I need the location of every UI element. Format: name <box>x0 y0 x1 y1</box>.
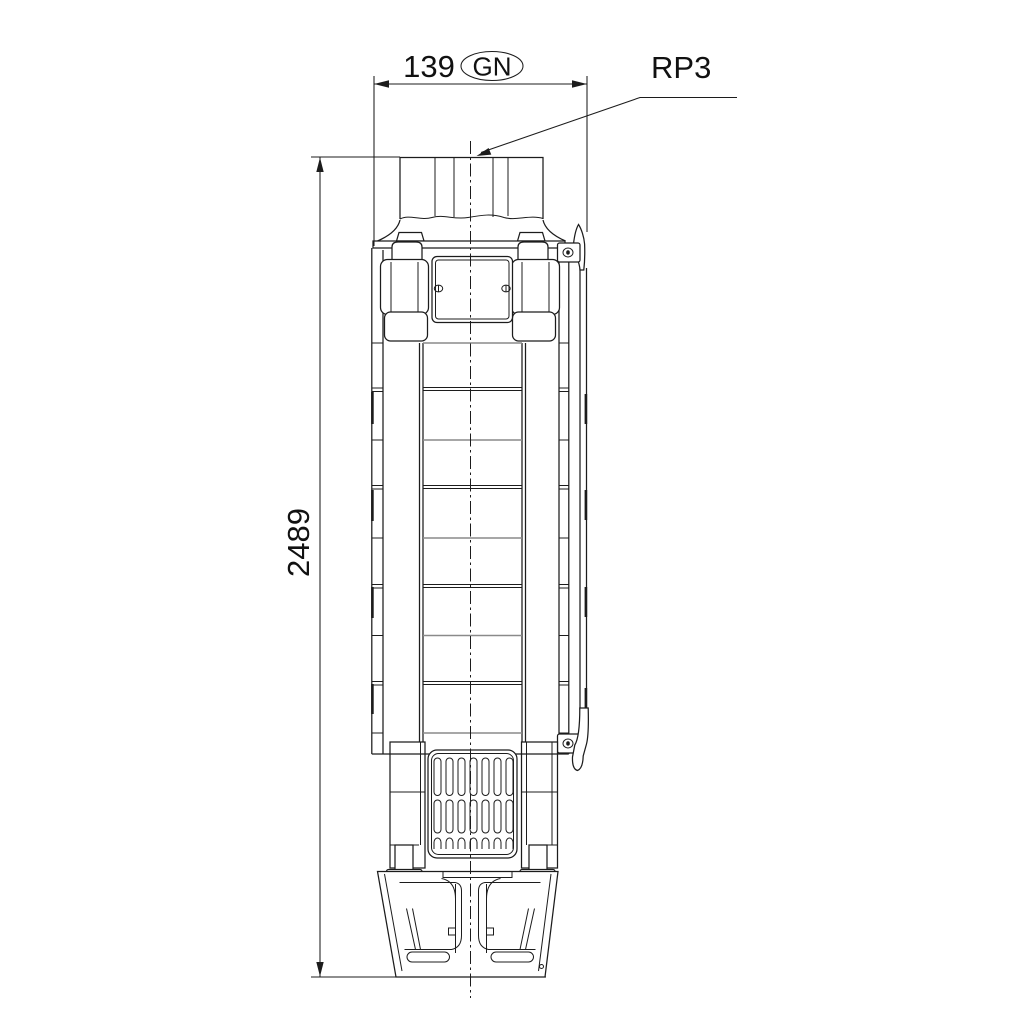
clamp-tab-right <box>518 233 546 242</box>
stud-left <box>395 845 413 870</box>
chamber-joint-lines-single <box>423 343 522 733</box>
pump-technical-drawing: 139 GN 2489 RP3 <box>0 0 1024 1024</box>
clamp-tab-left <box>397 233 425 242</box>
width-dimension-value: 139 <box>403 49 455 84</box>
chamber-face-edges <box>420 343 526 753</box>
shoulder-left-curve <box>378 220 401 241</box>
height-arrow-top <box>316 158 323 173</box>
connection-leader: RP3 <box>477 50 738 156</box>
width-arrow-left <box>374 80 389 87</box>
motor-base <box>378 872 559 978</box>
guard-top-screw-center <box>566 250 570 254</box>
shoulder-right-curve <box>543 220 566 241</box>
clamp-body-right <box>512 260 560 315</box>
cable-guard <box>558 225 589 771</box>
port-mask <box>400 157 543 218</box>
leader-line <box>481 98 737 153</box>
clamp-body-left <box>381 260 429 315</box>
nameplate-outer <box>432 257 513 323</box>
width-arrow-right <box>572 80 587 87</box>
stud-right <box>529 845 547 870</box>
connection-size-label: RP3 <box>651 50 711 85</box>
thread-code-label: GN <box>473 52 512 82</box>
guard-bottom-screw-center <box>566 741 570 745</box>
height-arrow-bottom <box>316 962 323 977</box>
nameplate <box>432 257 513 323</box>
guard-strip <box>580 268 587 710</box>
leader-arrow <box>477 148 492 156</box>
clamp-lower-right <box>513 312 556 341</box>
suction-strainer <box>428 750 517 858</box>
chamber-joint-lines-double <box>423 388 522 685</box>
discharge-port <box>400 157 543 219</box>
height-dimension-value: 2489 <box>281 508 316 577</box>
clamp-lower-left <box>385 312 428 341</box>
drawing-canvas: 139 GN 2489 RP3 <box>0 0 1024 1024</box>
